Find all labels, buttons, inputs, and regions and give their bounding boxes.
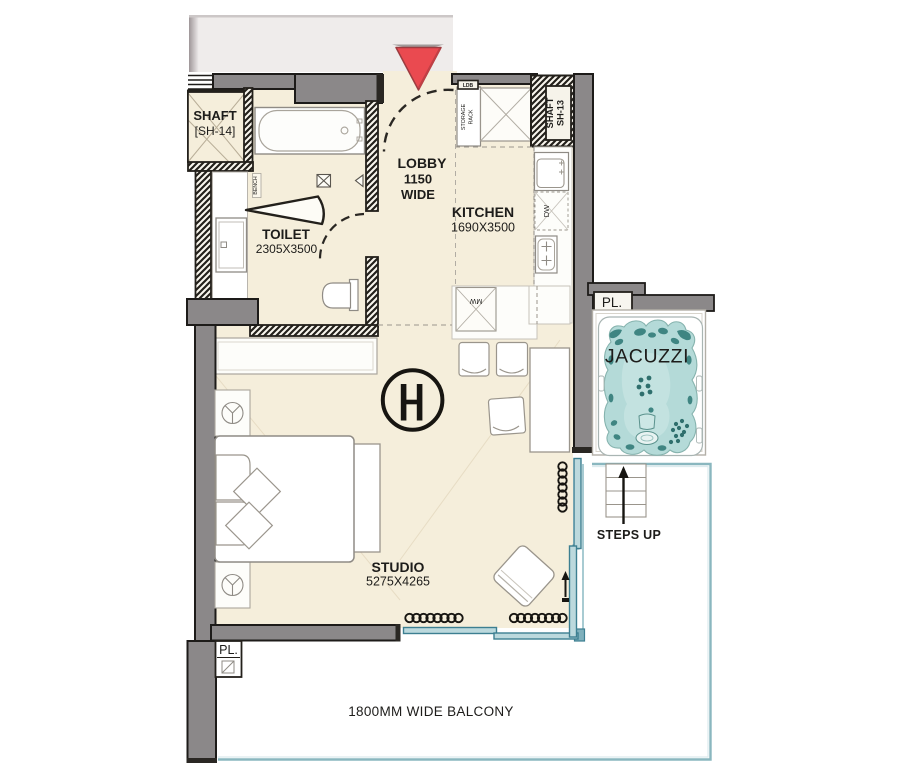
svg-text:JACUZZI: JACUZZI	[605, 346, 689, 368]
svg-text:1150: 1150	[404, 172, 432, 187]
svg-text:SHAFT: SHAFT	[545, 97, 555, 128]
svg-text:MW: MW	[469, 297, 482, 304]
svg-text:LOBBY: LOBBY	[398, 155, 448, 171]
svg-text:5275X4265: 5275X4265	[366, 575, 430, 589]
svg-text:SH-13: SH-13	[556, 100, 566, 126]
svg-text:STEPS UP: STEPS UP	[597, 528, 661, 542]
svg-text:PL.: PL.	[219, 643, 238, 657]
svg-text:RACK: RACK	[469, 109, 475, 124]
svg-text:1690X3500: 1690X3500	[451, 221, 515, 235]
svg-text:TOILET: TOILET	[262, 227, 311, 242]
svg-text:1800MM WIDE BALCONY: 1800MM WIDE BALCONY	[348, 704, 514, 719]
svg-text:BENCH: BENCH	[253, 176, 259, 194]
svg-text:STUDIO: STUDIO	[372, 559, 425, 575]
svg-text:SHAFT: SHAFT	[193, 108, 236, 123]
svg-text:WIDE: WIDE	[401, 187, 435, 202]
svg-text:KITCHEN: KITCHEN	[452, 204, 514, 220]
svg-text:STORAGE: STORAGE	[461, 103, 467, 130]
svg-text:[SH-14]: [SH-14]	[195, 124, 236, 138]
svg-text:2305X3500: 2305X3500	[256, 242, 318, 256]
svg-text:LDB: LDB	[463, 83, 474, 89]
svg-text:PL.: PL.	[602, 295, 622, 310]
svg-text:DW: DW	[542, 204, 551, 217]
